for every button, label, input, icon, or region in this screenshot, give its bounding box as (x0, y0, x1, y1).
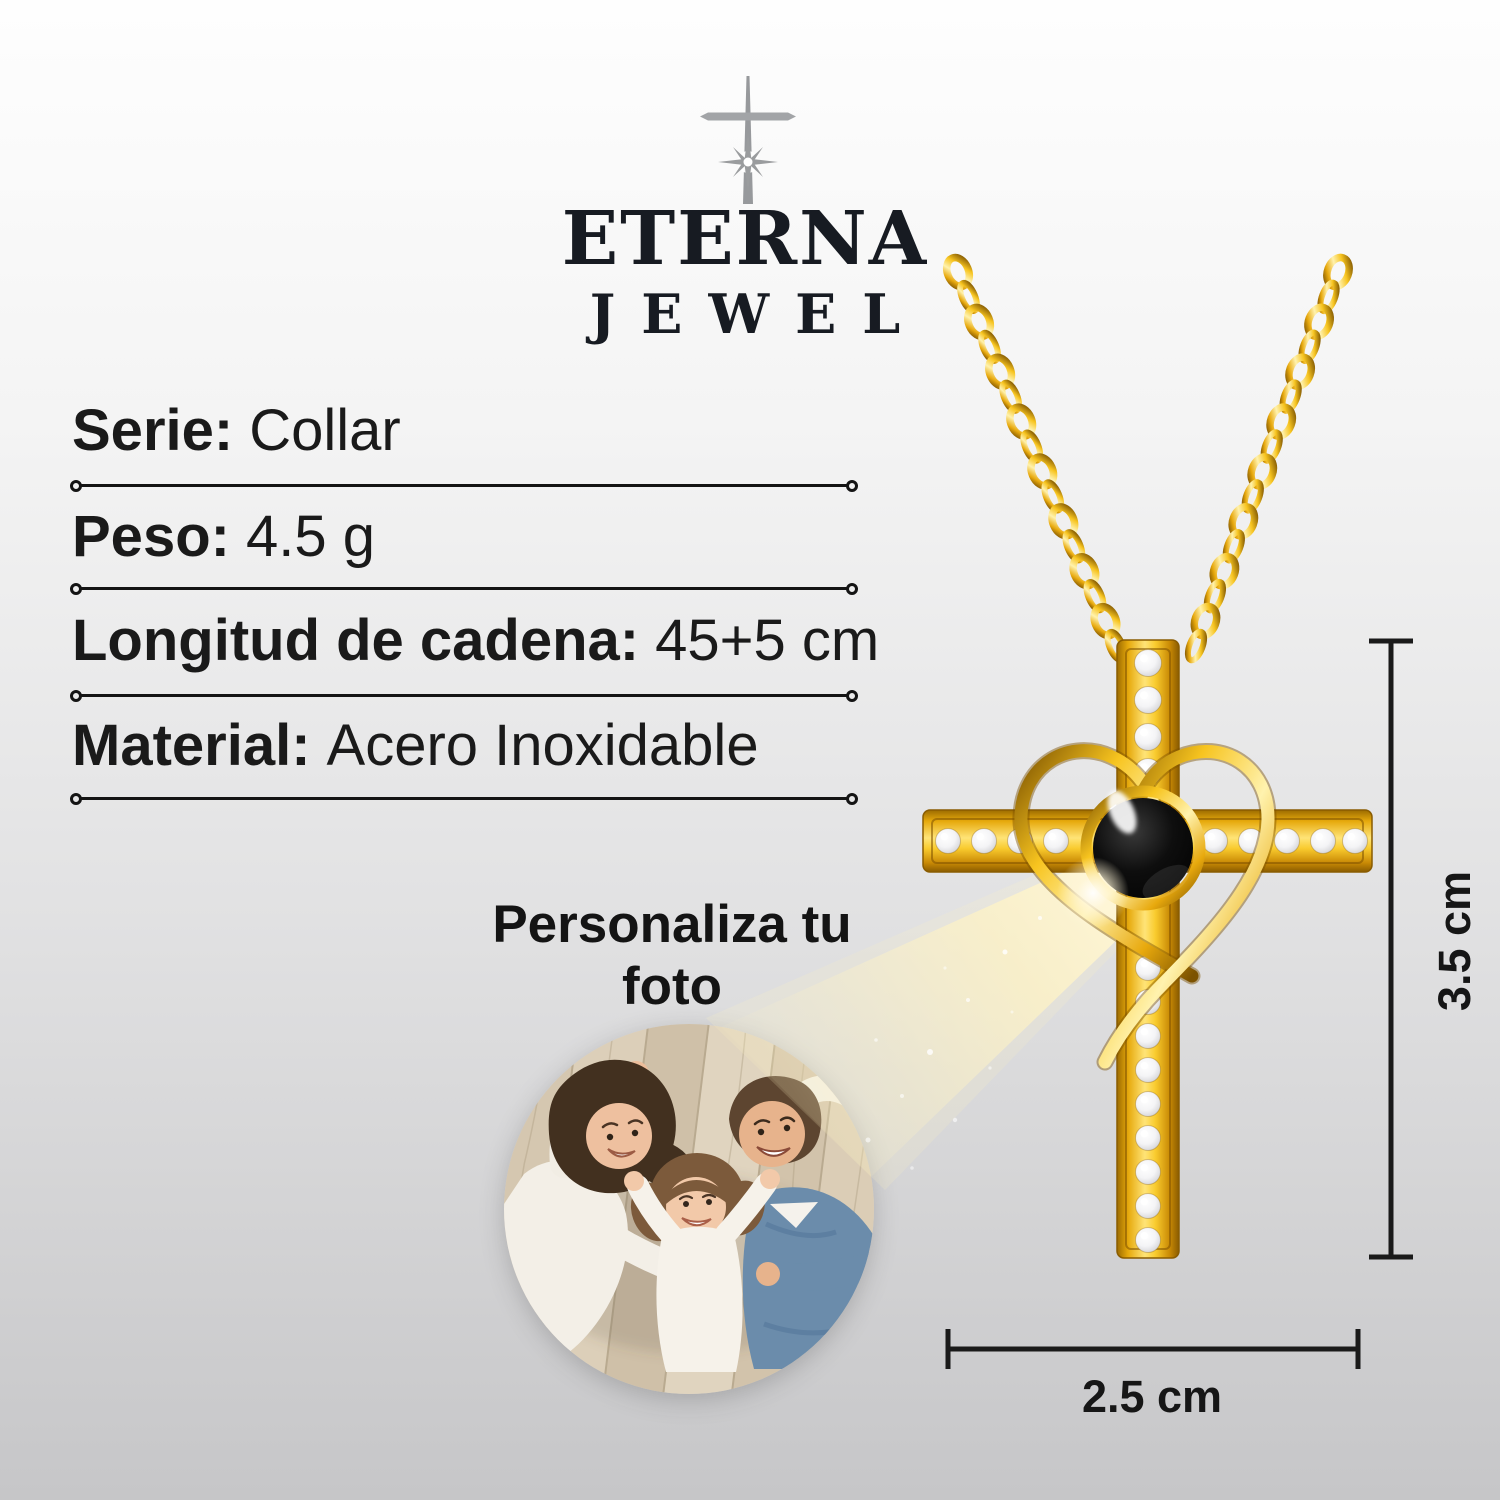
divider-line (70, 583, 858, 595)
spec-value: 45+5 cm (655, 608, 879, 673)
brand-wordmark-line1: ETERNA (470, 198, 1020, 280)
spec-label: Material: (72, 713, 311, 778)
customize-headline: Personaliza tu foto (360, 894, 984, 1018)
family-photo (504, 1024, 874, 1394)
customize-headline-line2: foto (360, 956, 984, 1018)
spec-value: Acero Inoxidable (327, 713, 759, 778)
cross-sparkle-icon (700, 76, 796, 208)
brand-wordmark-line2: JEWEL (470, 286, 1020, 342)
spec-label: Peso: (72, 504, 230, 569)
divider-line (70, 690, 858, 702)
divider-line (70, 793, 858, 805)
spec-row-longitud: Longitud de cadena:45+5 cm (72, 606, 872, 676)
spec-label: Longitud de cadena: (72, 608, 639, 673)
spec-label: Serie: (72, 398, 233, 463)
pendant-width-label: 2.5 cm (1032, 1372, 1272, 1422)
spec-value: 4.5 g (246, 504, 375, 569)
pendant-height-label: 3.5 cm (1430, 831, 1480, 1051)
cross-pendant (923, 640, 1372, 1258)
spec-row-peso: Peso:4.5 g (72, 502, 872, 572)
projection-stone (1057, 786, 1200, 929)
family-photo-illustration (504, 1024, 874, 1394)
customize-headline-line1: Personaliza tu (360, 894, 984, 956)
product-infographic: ETERNA JEWEL Serie:Collar Peso:4.5 g Lon… (0, 0, 1500, 1500)
spec-row-material: Material:Acero Inoxidable (72, 711, 872, 781)
divider-line (70, 480, 858, 492)
spec-row-serie: Serie:Collar (72, 396, 872, 466)
dimension-lines (948, 641, 1413, 1369)
heart-outline (1021, 751, 1268, 1062)
spec-value: Collar (249, 398, 401, 463)
